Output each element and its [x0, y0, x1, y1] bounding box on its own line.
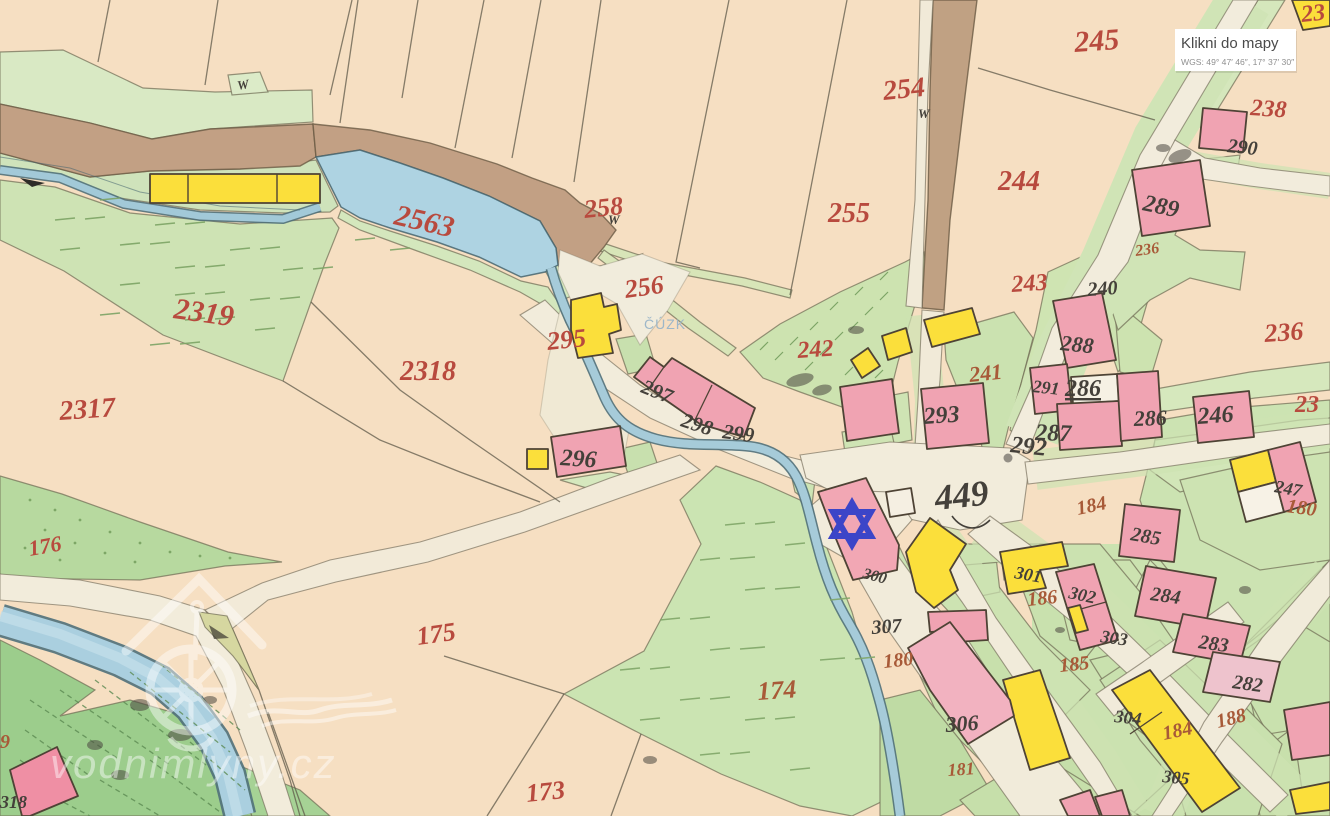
- svg-text:175: 175: [415, 617, 458, 651]
- svg-text:9: 9: [0, 731, 10, 753]
- svg-text:242: 242: [796, 336, 835, 365]
- svg-text:318: 318: [0, 792, 27, 812]
- svg-text:299: 299: [720, 419, 756, 447]
- svg-text:295: 295: [545, 323, 588, 356]
- svg-text:181: 181: [947, 758, 975, 780]
- svg-text:185: 185: [1058, 652, 1090, 677]
- svg-text:W: W: [918, 106, 931, 121]
- svg-text:241: 241: [967, 359, 1003, 387]
- svg-text:293: 293: [922, 402, 961, 431]
- svg-text:23: 23: [1294, 392, 1319, 418]
- svg-text:296: 296: [559, 445, 598, 474]
- svg-text:2317: 2317: [57, 392, 117, 427]
- svg-text:23: 23: [1299, 0, 1327, 28]
- svg-text:240: 240: [1086, 277, 1118, 301]
- svg-text:245: 245: [1072, 23, 1120, 59]
- svg-text:303: 303: [1098, 626, 1129, 650]
- svg-text:305: 305: [1161, 766, 1191, 789]
- svg-text:282: 282: [1230, 671, 1264, 697]
- svg-text:256: 256: [622, 270, 666, 304]
- svg-text:243: 243: [1010, 270, 1049, 299]
- svg-text:WGS: 49° 47′ 46″, 17° 37′ 30″: WGS: 49° 47′ 46″, 17° 37′ 30″: [1181, 57, 1294, 67]
- svg-text:290: 290: [1225, 135, 1258, 160]
- svg-text:186: 186: [1026, 586, 1058, 611]
- svg-text:244: 244: [997, 166, 1040, 197]
- svg-text:236: 236: [1262, 316, 1304, 348]
- svg-text:174: 174: [756, 674, 797, 706]
- svg-text:vodnimlyny.cz: vodnimlyny.cz: [50, 740, 337, 787]
- svg-text:449: 449: [932, 473, 991, 519]
- svg-text:173: 173: [525, 775, 567, 808]
- svg-text:307: 307: [870, 615, 903, 639]
- svg-text:238: 238: [1249, 95, 1288, 124]
- svg-text:2318: 2318: [399, 356, 456, 387]
- svg-text:246: 246: [1196, 402, 1235, 431]
- svg-text:291: 291: [1031, 376, 1061, 399]
- svg-text:255: 255: [827, 198, 870, 229]
- svg-text:254: 254: [880, 72, 926, 107]
- svg-text:ČÚZK: ČÚZK: [644, 316, 686, 332]
- svg-text:306: 306: [944, 710, 980, 737]
- svg-text:292: 292: [1008, 432, 1048, 462]
- svg-text:284: 284: [1148, 583, 1182, 609]
- svg-text:286: 286: [1132, 405, 1167, 431]
- svg-text:180: 180: [1285, 495, 1318, 521]
- svg-text:283: 283: [1196, 631, 1230, 657]
- svg-text:286: 286: [1064, 376, 1101, 402]
- svg-text:236: 236: [1133, 240, 1160, 260]
- svg-text:180: 180: [882, 648, 914, 673]
- svg-text:288: 288: [1058, 330, 1094, 358]
- svg-text:304: 304: [1113, 706, 1143, 729]
- svg-text:W: W: [608, 212, 621, 227]
- svg-text:Klikni do mapy: Klikni do mapy: [1181, 35, 1279, 52]
